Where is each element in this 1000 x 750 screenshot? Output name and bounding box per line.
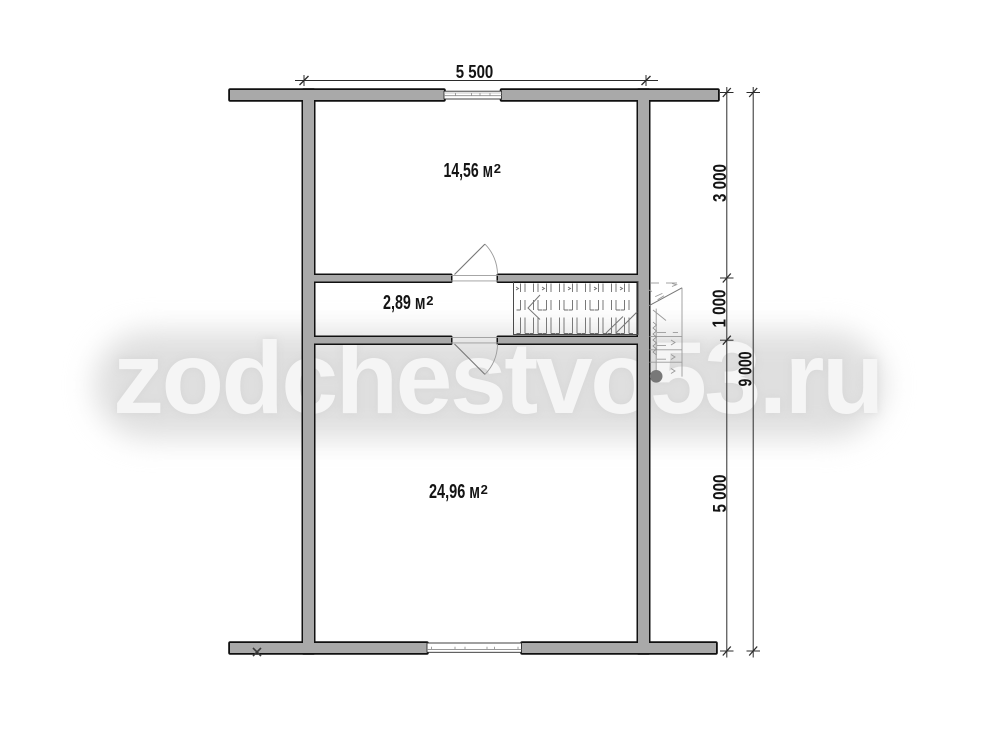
svg-text:9 000: 9 000 <box>736 352 756 387</box>
svg-text:3 000: 3 000 <box>710 164 730 202</box>
svg-text:14,56 м: 14,56 м <box>444 160 494 182</box>
svg-text:24,96 м: 24,96 м <box>429 481 480 503</box>
svg-text:2,89 м: 2,89 м <box>383 292 426 314</box>
svg-text:5 000: 5 000 <box>710 475 730 513</box>
svg-text:5 500: 5 500 <box>456 62 494 82</box>
svg-text:2: 2 <box>494 161 501 176</box>
svg-text:2: 2 <box>481 482 488 497</box>
svg-text:2: 2 <box>426 293 433 308</box>
svg-text:1 000: 1 000 <box>710 290 730 328</box>
